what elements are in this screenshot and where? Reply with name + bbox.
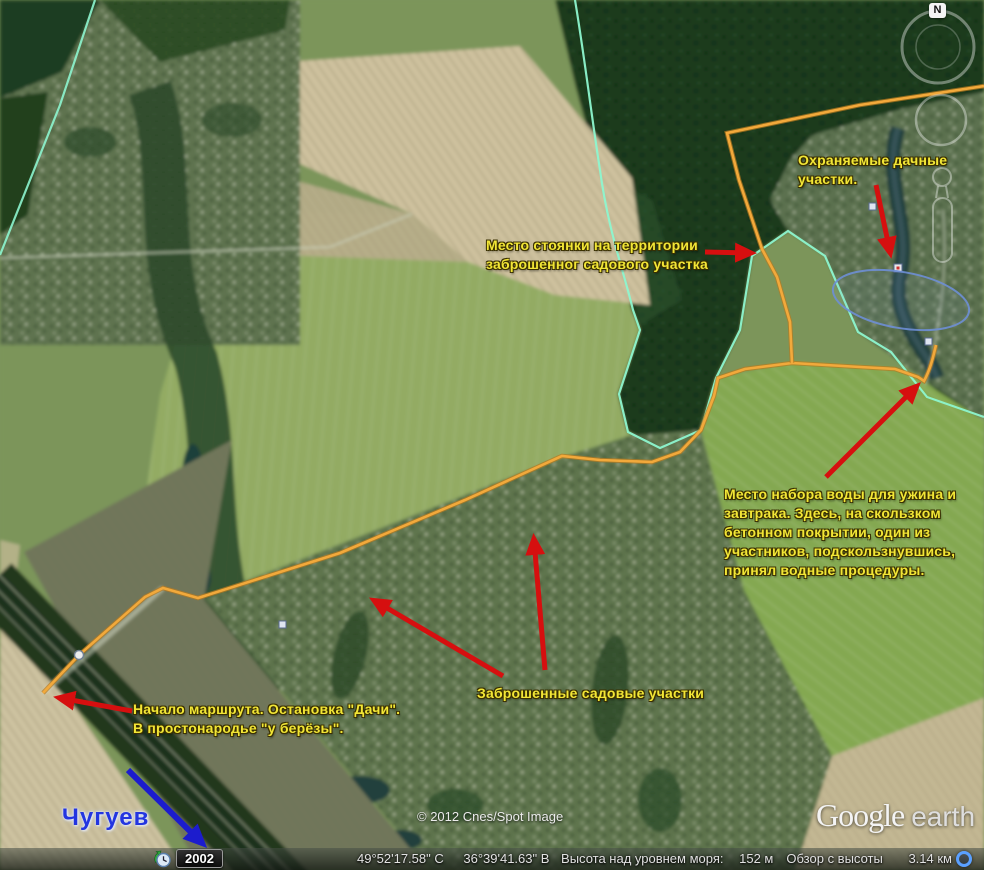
logo-google-text: Google [816,797,904,833]
satellite-imagery [0,0,984,870]
annotation-route-start: Начало маршрута. Остановка "Дачи". В про… [133,700,400,738]
google-earth-viewport[interactable]: Охраняемые дачные участки. Место стоянки… [0,0,984,870]
longitude-value: 36°39'41.63" В [463,851,549,866]
statusbar-eye-altitude: Обзор с высоты 3.14 км [786,851,952,866]
timeline-clock-icon[interactable] [153,850,171,868]
status-bar: 2002 49°52'17.58" С 36°39'41.63" В Высот… [0,848,984,870]
annotation-camp-site: Место стоянки на территории заброшенног … [486,236,708,274]
elevation-value: 152 м [739,851,773,866]
timeline-control[interactable]: 2002 [153,849,223,868]
route-waypoint-marker[interactable] [75,651,84,660]
compass-north-button[interactable]: N [929,3,946,18]
latitude-value: 49°52'17.58" С [357,851,444,866]
town-label-chuguev: Чугуев [62,804,149,832]
map-canvas[interactable] [0,0,984,870]
arrow-camp-site [705,252,750,253]
statusbar-coordinates: 49°52'17.58" С 36°39'41.63" В Высота над… [357,851,773,866]
timeline-year-badge[interactable]: 2002 [176,849,223,868]
annotation-water-point: Место набора воды для ужина и завтрака. … [724,485,956,580]
google-earth-logo: Googleearth [816,797,975,834]
eye-altitude-label: Обзор с высоты [786,851,882,866]
annotation-abandoned-gardens: Заброшенные садовые участки [477,684,704,703]
logo-earth-text: earth [911,801,975,832]
imagery-copyright: © 2012 Cnes/Spot Image [417,809,563,824]
streaming-indicator [956,851,972,867]
annotation-protected-dachas: Охраняемые дачные участки. [798,151,947,189]
eye-altitude-value: 3.14 км [908,851,952,866]
elevation-label: Высота над уровнем моря: [561,851,723,866]
